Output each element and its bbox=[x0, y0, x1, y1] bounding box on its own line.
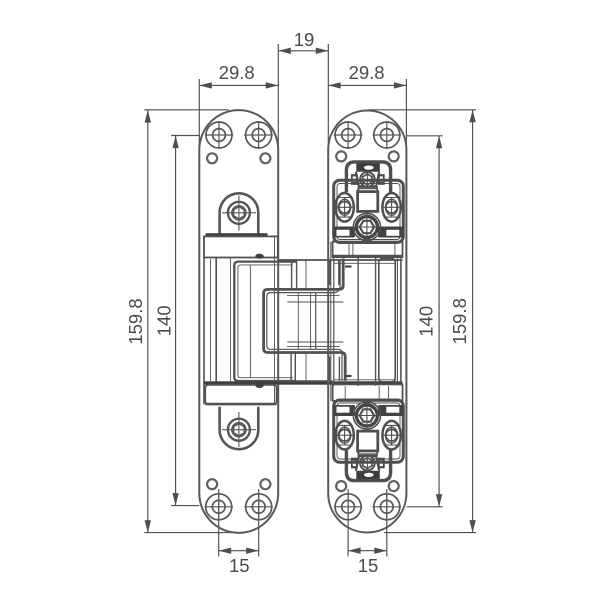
svg-text:29.8: 29.8 bbox=[219, 62, 255, 83]
svg-text:159.8: 159.8 bbox=[449, 298, 470, 344]
svg-text:140: 140 bbox=[153, 305, 174, 336]
svg-text:15: 15 bbox=[229, 555, 250, 576]
svg-text:159.8: 159.8 bbox=[125, 298, 146, 344]
svg-text:140: 140 bbox=[416, 306, 437, 337]
svg-text:19: 19 bbox=[294, 29, 315, 50]
svg-text:15: 15 bbox=[358, 555, 379, 576]
svg-text:29.8: 29.8 bbox=[349, 62, 385, 83]
